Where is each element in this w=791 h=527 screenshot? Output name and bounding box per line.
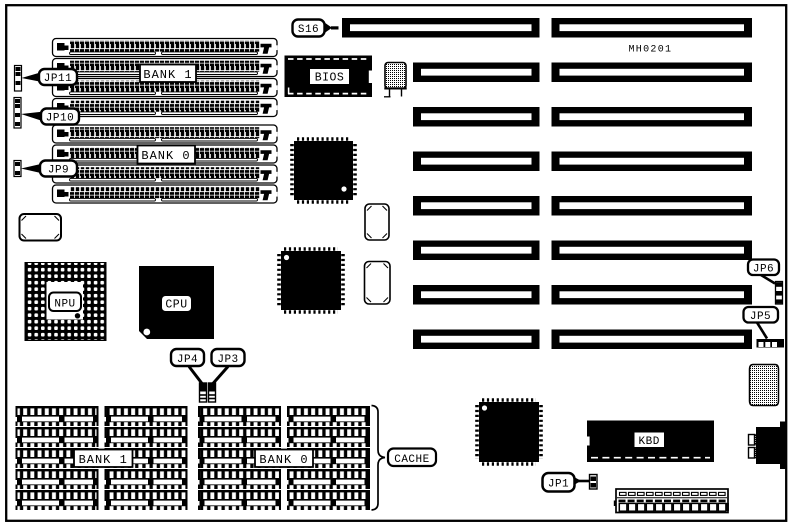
svg-text:S16: S16 <box>298 24 319 36</box>
svg-text:CPU: CPU <box>165 299 187 312</box>
svg-text:CACHE: CACHE <box>394 454 430 466</box>
svg-text:BANK 1: BANK 1 <box>143 68 192 82</box>
svg-text:JP10: JP10 <box>46 113 74 125</box>
svg-text:JP9: JP9 <box>48 165 69 177</box>
svg-text:KBD: KBD <box>639 436 660 448</box>
svg-text:BANK 0: BANK 0 <box>259 453 308 467</box>
svg-text:BANK 1: BANK 1 <box>79 453 128 467</box>
svg-text:JP3: JP3 <box>217 354 238 366</box>
svg-text:JP5: JP5 <box>750 311 771 323</box>
svg-text:BIOS: BIOS <box>315 72 345 85</box>
svg-text:MH0201: MH0201 <box>629 45 673 56</box>
svg-text:BANK 0: BANK 0 <box>141 149 190 163</box>
svg-text:JP1: JP1 <box>548 478 569 490</box>
svg-text:NPU: NPU <box>54 299 75 311</box>
svg-text:JP11: JP11 <box>44 73 72 85</box>
svg-text:JP6: JP6 <box>753 264 774 276</box>
svg-text:JP4: JP4 <box>177 354 198 366</box>
